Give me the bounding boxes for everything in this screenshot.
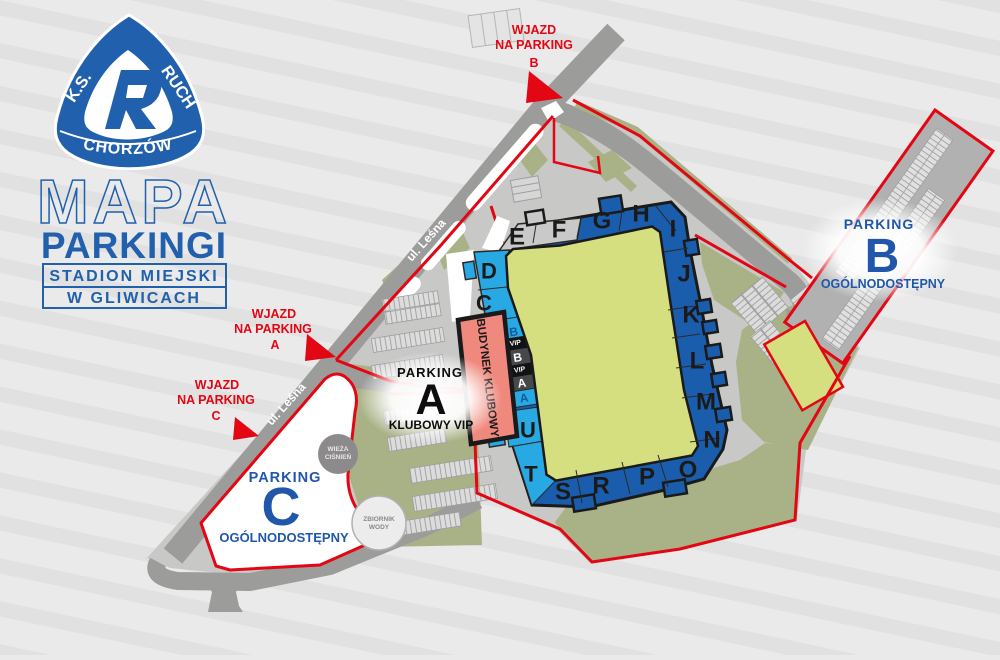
svg-text:H: H bbox=[632, 201, 649, 228]
svg-text:J: J bbox=[677, 261, 690, 288]
svg-text:G: G bbox=[593, 208, 612, 235]
svg-text:NA PARKING: NA PARKING bbox=[177, 393, 255, 407]
svg-text:STADION MIEJSKI: STADION MIEJSKI bbox=[49, 268, 218, 285]
svg-text:OGÓLNODOSTĘPNY: OGÓLNODOSTĘPNY bbox=[821, 276, 946, 291]
svg-text:OGÓLNODOSTĘPNY: OGÓLNODOSTĘPNY bbox=[219, 530, 349, 545]
svg-text:C: C bbox=[476, 291, 492, 316]
svg-text:I: I bbox=[670, 216, 677, 243]
svg-text:C: C bbox=[211, 409, 220, 423]
svg-text:B: B bbox=[865, 230, 900, 283]
svg-text:C: C bbox=[262, 477, 301, 537]
svg-text:L: L bbox=[690, 348, 705, 375]
svg-text:WIEŻA: WIEŻA bbox=[328, 445, 349, 453]
svg-text:PARKINGI: PARKINGI bbox=[41, 225, 227, 266]
svg-text:O: O bbox=[679, 457, 698, 484]
svg-text:R: R bbox=[592, 473, 609, 500]
svg-text:P: P bbox=[639, 464, 655, 491]
svg-text:W GLIWICACH: W GLIWICACH bbox=[67, 290, 201, 307]
svg-text:A: A bbox=[415, 376, 446, 424]
svg-text:CIŚNIEŃ: CIŚNIEŃ bbox=[325, 452, 352, 461]
svg-text:WODY: WODY bbox=[369, 524, 390, 531]
svg-text:KLUBOWY VIP: KLUBOWY VIP bbox=[389, 418, 473, 432]
svg-text:F: F bbox=[552, 217, 567, 244]
svg-text:A: A bbox=[270, 338, 279, 352]
svg-text:B: B bbox=[529, 56, 538, 70]
svg-text:WJAZD: WJAZD bbox=[252, 307, 296, 321]
svg-text:NA PARKING: NA PARKING bbox=[234, 322, 312, 336]
svg-text:ZBIORNIK: ZBIORNIK bbox=[363, 516, 395, 523]
svg-text:S: S bbox=[555, 479, 571, 506]
svg-text:WJAZD: WJAZD bbox=[512, 23, 556, 37]
svg-text:M: M bbox=[696, 389, 716, 416]
svg-text:D: D bbox=[481, 259, 497, 284]
svg-text:E: E bbox=[509, 224, 525, 251]
svg-text:WJAZD: WJAZD bbox=[195, 378, 239, 392]
svg-text:NA PARKING: NA PARKING bbox=[495, 38, 573, 52]
svg-text:U: U bbox=[520, 418, 536, 443]
svg-text:K: K bbox=[682, 302, 700, 329]
svg-text:N: N bbox=[703, 427, 720, 454]
svg-text:T: T bbox=[524, 462, 538, 487]
